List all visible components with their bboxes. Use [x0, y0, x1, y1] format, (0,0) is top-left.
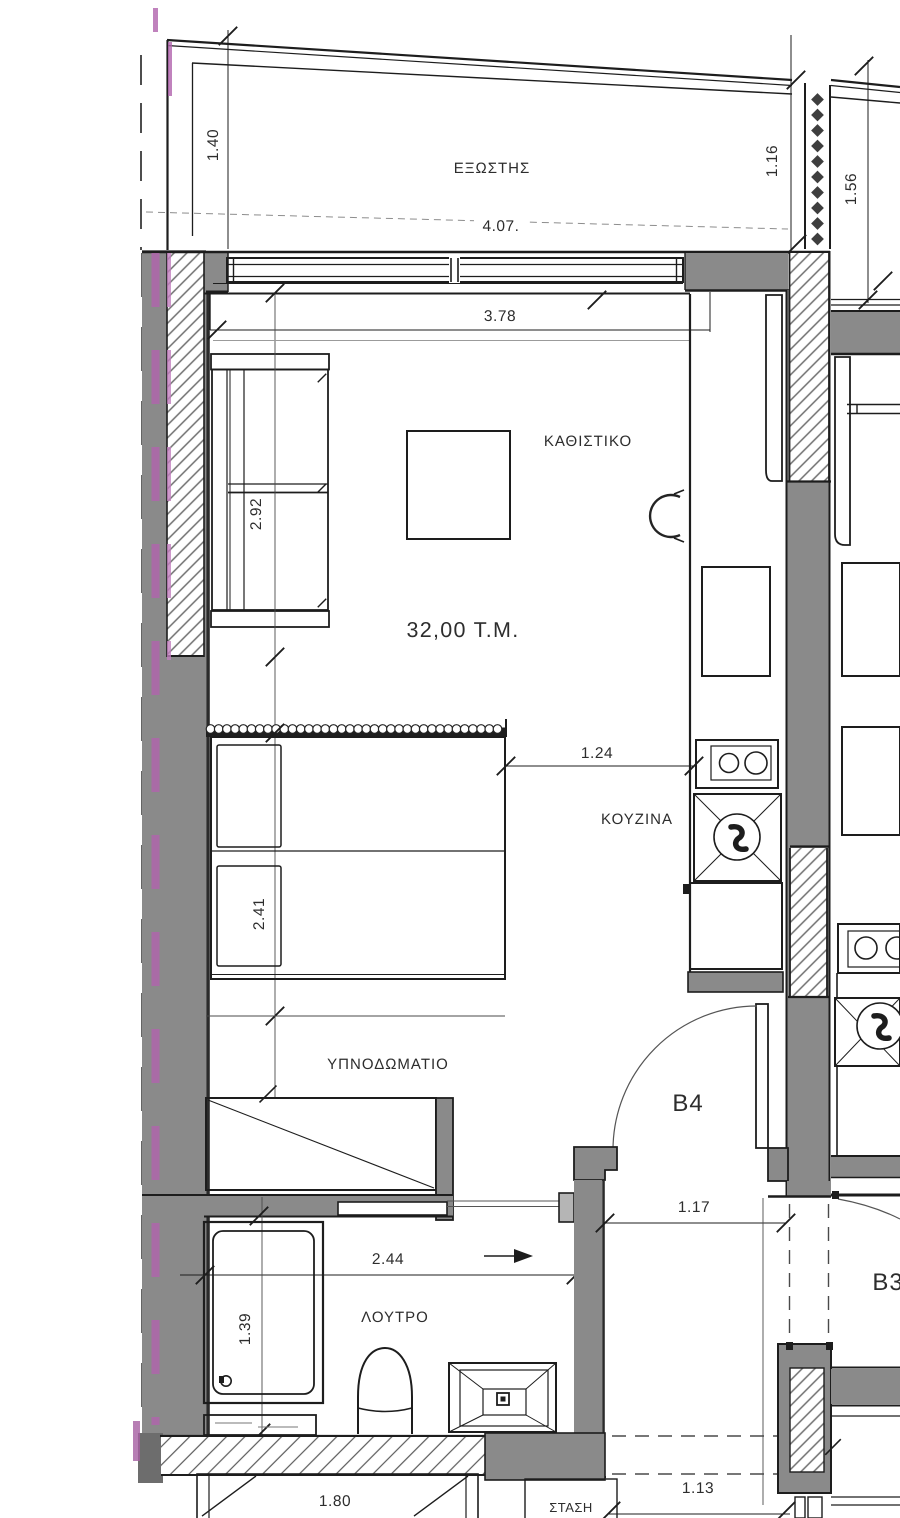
svg-text:ΕΞΩΣΤΗΣ: ΕΞΩΣΤΗΣ — [454, 160, 531, 177]
svg-text:B4: B4 — [672, 1090, 703, 1117]
svg-text:B3: B3 — [872, 1269, 900, 1296]
svg-text:32,00 T.M.: 32,00 T.M. — [407, 618, 520, 642]
svg-text:2.92: 2.92 — [248, 498, 265, 530]
svg-text:3.78: 3.78 — [484, 308, 516, 325]
svg-text:ΛΟΥΤΡΟ: ΛΟΥΤΡΟ — [361, 1309, 429, 1326]
svg-text:ΣΤΑΣΗ: ΣΤΑΣΗ — [549, 1500, 593, 1515]
svg-text:1.17: 1.17 — [678, 1199, 710, 1216]
svg-text:2.44: 2.44 — [372, 1251, 404, 1268]
svg-text:1.39: 1.39 — [237, 1313, 254, 1345]
svg-text:ΚΑΘΙΣΤΙΚΟ: ΚΑΘΙΣΤΙΚΟ — [544, 433, 632, 450]
svg-text:ΥΠΝΟΔΩΜΑΤΙΟ: ΥΠΝΟΔΩΜΑΤΙΟ — [327, 1056, 449, 1073]
svg-text:4.07.: 4.07. — [483, 218, 520, 235]
svg-text:ΚΟΥΖΙΝΑ: ΚΟΥΖΙΝΑ — [601, 811, 673, 828]
svg-text:1.16: 1.16 — [764, 145, 781, 177]
svg-text:1.40: 1.40 — [205, 129, 222, 161]
svg-text:1.80: 1.80 — [319, 1493, 351, 1510]
svg-text:1.24: 1.24 — [581, 745, 613, 762]
svg-text:1.56: 1.56 — [843, 173, 860, 205]
svg-text:1.13: 1.13 — [682, 1480, 714, 1497]
svg-text:2.41: 2.41 — [251, 898, 268, 930]
